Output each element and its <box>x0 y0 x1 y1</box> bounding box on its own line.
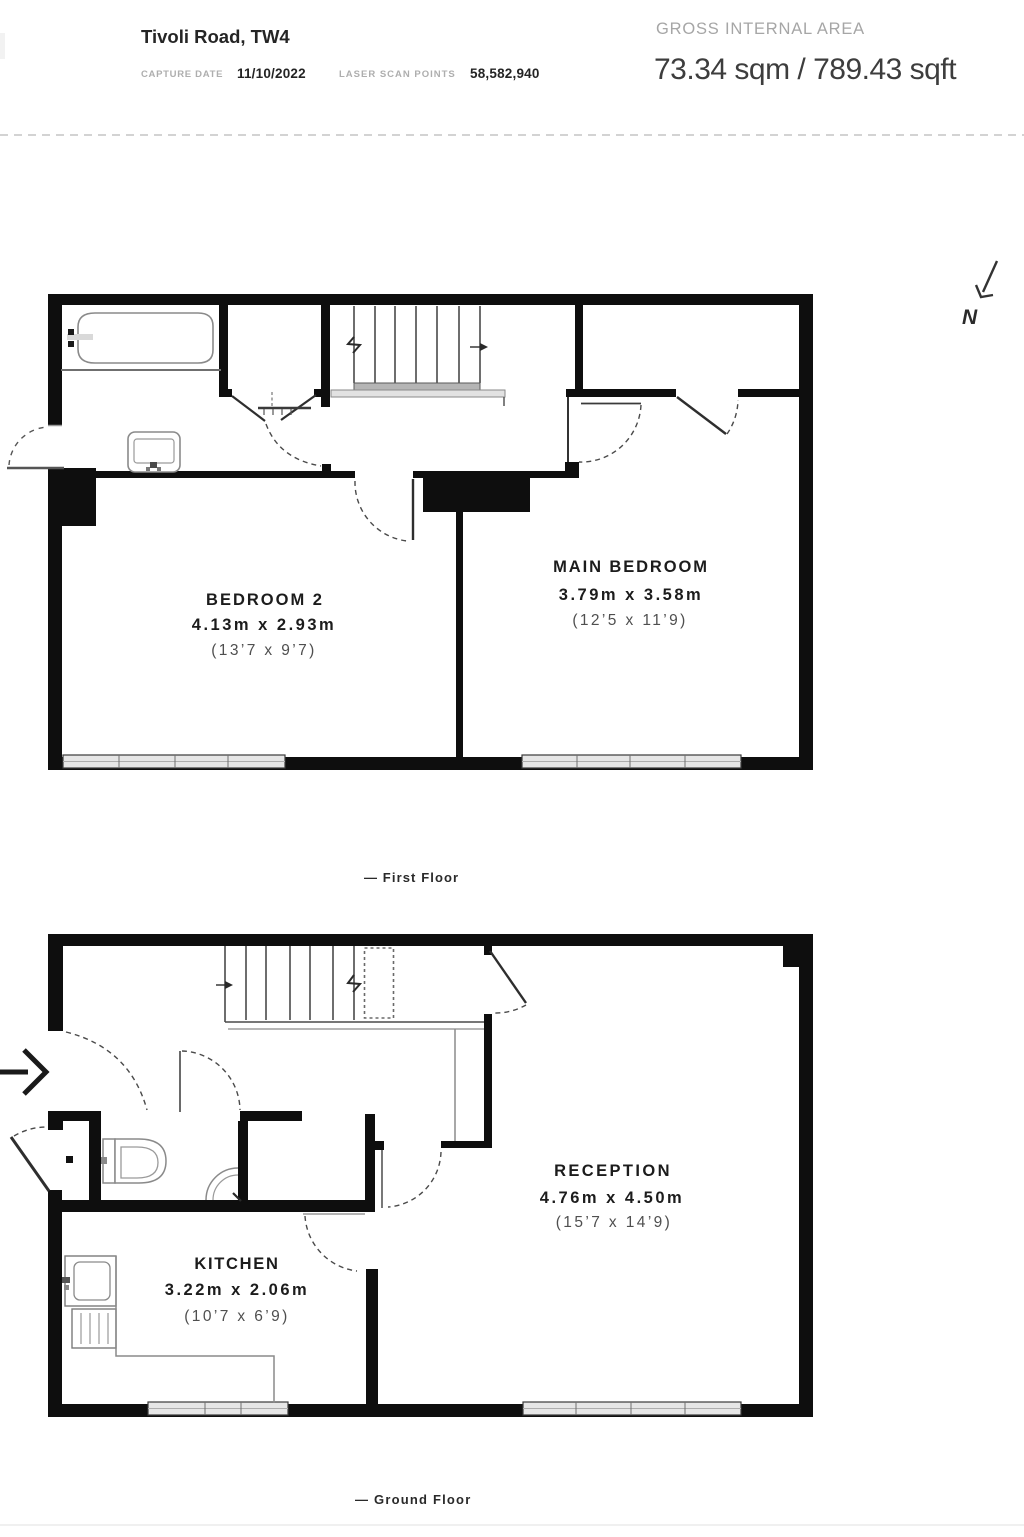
svg-text:— Ground Floor: — Ground Floor <box>355 1492 471 1507</box>
svg-text:KITCHEN: KITCHEN <box>194 1255 279 1273</box>
svg-text:3.22m x 2.06m: 3.22m x 2.06m <box>165 1281 309 1299</box>
svg-text:CAPTURE DATE: CAPTURE DATE <box>141 69 223 80</box>
svg-text:RECEPTION: RECEPTION <box>554 1162 672 1180</box>
svg-text:GROSS INTERNAL AREA: GROSS INTERNAL AREA <box>656 20 865 38</box>
svg-text:(13’7 x 9’7): (13’7 x 9’7) <box>211 642 316 659</box>
svg-text:(12’5 x 11’9): (12’5 x 11’9) <box>572 612 687 629</box>
svg-text:LASER SCAN POINTS: LASER SCAN POINTS <box>339 69 456 80</box>
svg-text:Tivoli Road, TW4: Tivoli Road, TW4 <box>141 26 290 47</box>
svg-text:— First Floor: — First Floor <box>364 870 459 885</box>
svg-text:73.34 sqm / 789.43 sqft: 73.34 sqm / 789.43 sqft <box>654 53 957 86</box>
svg-text:MAIN BEDROOM: MAIN BEDROOM <box>553 558 709 576</box>
svg-text:(10’7 x 6’9): (10’7 x 6’9) <box>184 1308 289 1325</box>
svg-text:BEDROOM 2: BEDROOM 2 <box>206 591 324 609</box>
svg-text:3.79m x 3.58m: 3.79m x 3.58m <box>559 586 703 604</box>
svg-text:N: N <box>962 306 978 329</box>
svg-text:58,582,940: 58,582,940 <box>470 66 540 81</box>
svg-text:4.13m x 2.93m: 4.13m x 2.93m <box>192 616 336 634</box>
svg-text:4.76m x 4.50m: 4.76m x 4.50m <box>540 1189 684 1207</box>
svg-text:(15’7 x 14’9): (15’7 x 14’9) <box>556 1214 673 1231</box>
svg-text:11/10/2022: 11/10/2022 <box>237 66 306 81</box>
